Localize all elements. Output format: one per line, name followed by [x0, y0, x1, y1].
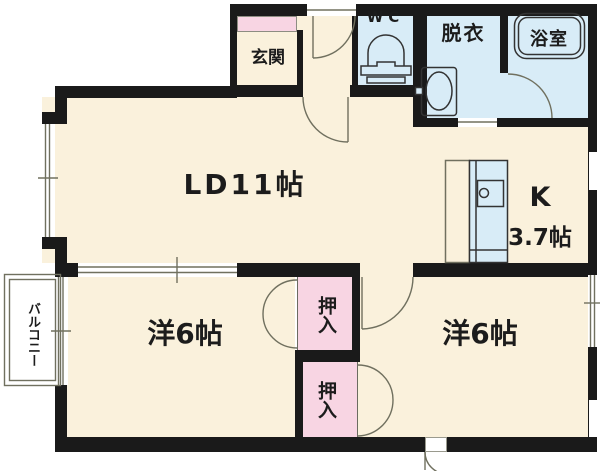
label-living-dining: LD11帖 — [120, 163, 370, 203]
bathroom-door-arc — [508, 74, 552, 118]
label-genkan: 玄関 — [238, 43, 298, 68]
closet-top-doors-arc — [263, 280, 297, 348]
window-bedroom-right-glazing — [584, 275, 600, 347]
label-kitchen: K — [505, 182, 575, 213]
bottom-exterior-door-arc — [425, 452, 447, 471]
window-ld-left-glazing — [38, 124, 58, 237]
label-balcony: バルコニー — [18, 284, 42, 384]
label-kitchen-size: 3.7帖 — [490, 218, 590, 252]
toilet-icon — [361, 35, 411, 83]
label-closet-top: 押入 — [312, 282, 340, 348]
label-datsui: 脱衣 — [427, 17, 500, 46]
partition-glazing — [78, 257, 237, 283]
closet-bottom-doors-arc — [358, 365, 393, 436]
label-wc: WC — [358, 8, 413, 26]
label-closet-bottom: 押入 — [312, 367, 340, 433]
label-bathroom: 浴室 — [518, 25, 580, 51]
front-door-arc — [313, 16, 355, 58]
label-bedroom-left: 洋6帖 — [105, 312, 265, 352]
floorplan: LD11帖 K 3.7帖 洋6帖 洋6帖 玄関 WC 脱衣 浴室 押入 押入 バ… — [0, 0, 600, 471]
label-bedroom-right: 洋6帖 — [400, 312, 560, 352]
washbasin-icon — [416, 68, 457, 116]
hall-ld-door-arc — [303, 97, 348, 142]
